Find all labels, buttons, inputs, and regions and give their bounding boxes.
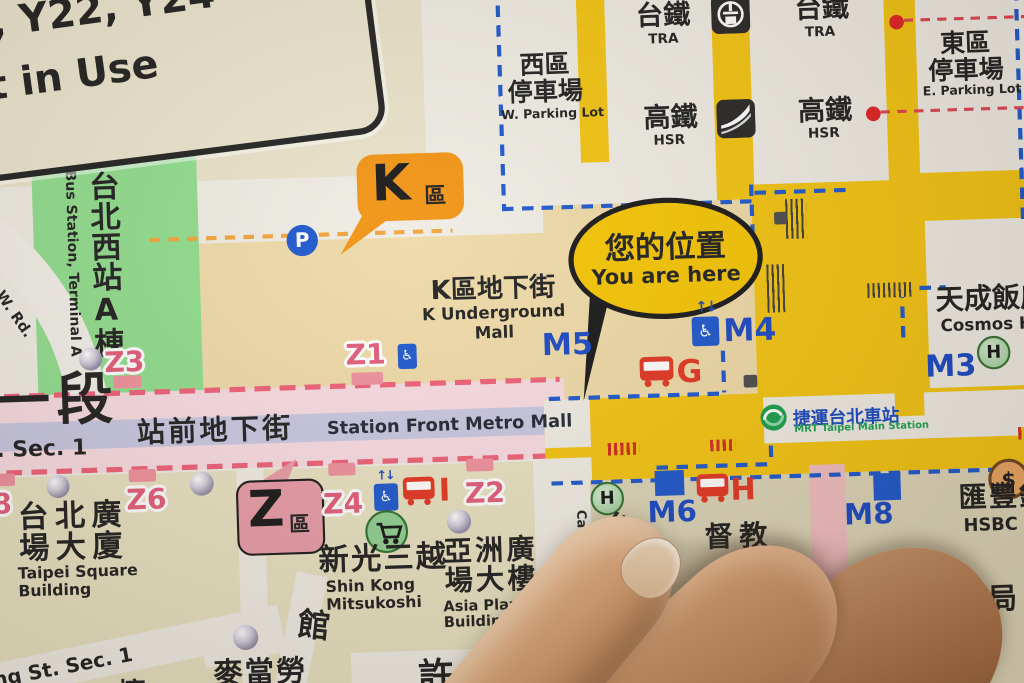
e-parking-en: E. Parking Lot bbox=[923, 82, 1011, 99]
exit-m3: M3 bbox=[925, 347, 977, 384]
bus-icon-h bbox=[695, 472, 729, 504]
exit-mark-z6 bbox=[129, 469, 157, 482]
blue-dash-m6-v bbox=[769, 445, 774, 464]
exit-z6: Z6 bbox=[126, 483, 167, 517]
escalator-icon bbox=[743, 375, 757, 388]
exit-mark-z1 bbox=[351, 372, 383, 386]
you-are-here-en: You are here bbox=[591, 261, 741, 289]
k-bubble-letter: K bbox=[371, 153, 412, 213]
hsr-logo bbox=[716, 99, 756, 139]
hsr-right-zh: 高鐵 bbox=[798, 96, 853, 128]
taipei-square-en2: Building bbox=[18, 581, 91, 601]
rail-band-4 bbox=[908, 169, 1024, 221]
tra-logo bbox=[711, 0, 751, 34]
camera-icon bbox=[774, 212, 787, 225]
bus-icon-g bbox=[638, 354, 675, 389]
exit-mark-z8 bbox=[0, 473, 15, 487]
bus-stop-g: G bbox=[676, 353, 703, 390]
hsr-left-en: HSR bbox=[653, 133, 685, 149]
tra-left-zh: 台鐵 bbox=[636, 0, 691, 32]
you-are-here-zh: 您的位置 bbox=[604, 228, 726, 266]
hsr-right-en: HSR bbox=[808, 126, 840, 142]
stair-hatch-3 bbox=[867, 282, 911, 298]
band-sec-zh: 一段 bbox=[0, 368, 120, 435]
exit-z8: Z8 bbox=[0, 488, 12, 522]
hotel-icon-cosmos: H bbox=[976, 335, 1010, 369]
bus-stop-i: I bbox=[438, 472, 451, 509]
taipei-square-zh2: 場大廈 bbox=[19, 528, 130, 565]
west-station-zh: 台北西站A棟 bbox=[85, 170, 125, 375]
tra-right-zh: 台鐵 bbox=[794, 0, 849, 25]
exit-z1: Z1 bbox=[345, 338, 386, 372]
blue-exit-box-1 bbox=[655, 470, 685, 496]
red-dot-2 bbox=[866, 106, 881, 121]
exit-m8: M8 bbox=[844, 496, 895, 532]
bus-icon-i bbox=[402, 475, 436, 507]
elevator-icon-m4: ♿ bbox=[691, 316, 719, 346]
mrt-logo bbox=[759, 403, 788, 432]
mcdonalds-zh: 麥當勞 bbox=[213, 654, 308, 683]
bus-stop-h: H bbox=[730, 471, 756, 507]
band-mall-zh: 站前地下街 bbox=[136, 413, 294, 450]
exit-m4: M4 bbox=[723, 311, 777, 349]
tra-left-en: TRA bbox=[648, 32, 679, 48]
exit-z2: Z2 bbox=[464, 477, 505, 511]
cosmos-zh: 天成飯店 bbox=[935, 282, 1024, 317]
huaining-char: 懷 bbox=[117, 678, 146, 683]
cosmos-en: Cosmos Hotel bbox=[940, 313, 1024, 335]
exit-mark-z2 bbox=[466, 458, 494, 471]
stair-hatch-red-1 bbox=[608, 442, 640, 456]
stair-hatch-2 bbox=[766, 264, 785, 313]
guanqian-char: 館 bbox=[296, 607, 332, 647]
exit-mark-z4 bbox=[328, 463, 356, 476]
exit-m5: M5 bbox=[541, 325, 593, 362]
k-bubble-suffix: 區 bbox=[424, 184, 447, 209]
hsbc-en: HSBC bbox=[963, 515, 1018, 536]
red-dash-line-1 bbox=[904, 15, 1024, 22]
shin-kong-en2: Mitsukoshi bbox=[326, 593, 422, 613]
band-sec-en: d. Sec. 1 bbox=[0, 435, 88, 462]
z-bubble-letter: Z bbox=[247, 479, 285, 539]
stair-hatch-red-3 bbox=[1018, 426, 1024, 439]
hsbc-zh: 匯豐銀 bbox=[958, 481, 1024, 515]
tra-right-en: TRA bbox=[805, 25, 836, 41]
shin-kong-zh: 新光三越 bbox=[318, 539, 449, 577]
station-map-photo: 西區 停車場 W. Parking Lot 台鐵 TRA 高鐵 HSR 台鐵 T… bbox=[0, 0, 1024, 683]
z-bubble-suffix: 區 bbox=[289, 512, 311, 536]
exit-m6: M6 bbox=[647, 494, 698, 530]
updown-arrows-m4: ↑↓ bbox=[695, 299, 716, 316]
stair-hatch-red-2 bbox=[710, 439, 735, 451]
exit-z4: Z4 bbox=[323, 487, 364, 521]
updown-arrows-z4: ↑↓ bbox=[376, 468, 393, 483]
stair-hatch-1 bbox=[785, 199, 807, 239]
elevator-icon-z1: ♿ bbox=[398, 344, 418, 370]
elevator-icon-z4: ♿ bbox=[374, 483, 399, 511]
w-parking-zh2: 停車場 bbox=[504, 77, 586, 108]
w-parking-en: W. Parking Lot bbox=[501, 106, 591, 123]
hsr-left-zh: 高鐵 bbox=[643, 103, 698, 135]
